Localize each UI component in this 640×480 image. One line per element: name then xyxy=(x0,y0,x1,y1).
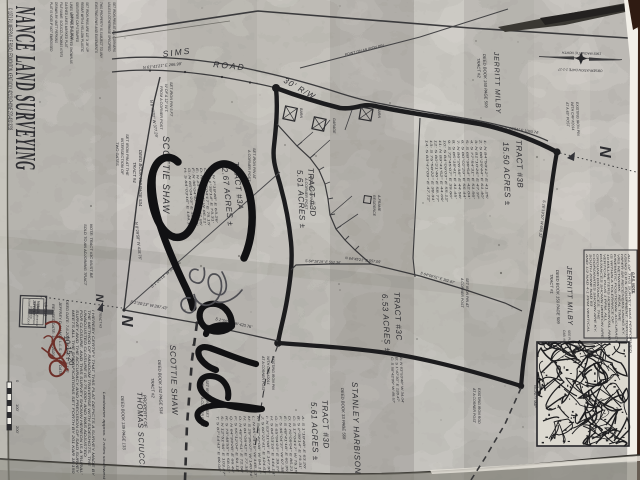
svg-text:NANCE RLS 3514: NANCE RLS 3514 xyxy=(70,14,74,40)
svg-text:NANCE LAND SURVEYING: NANCE LAND SURVEYING xyxy=(10,5,42,170)
svg-text:LAND SURVEYOR: LAND SURVEYOR xyxy=(35,304,40,326)
svg-text:TWO GATES: TWO GATES xyxy=(115,142,120,166)
svg-text:TRACT #2: TRACT #2 xyxy=(150,378,156,399)
svg-text:VICINITY MAP: VICINITY MAP xyxy=(533,385,537,408)
svg-text:200': 200' xyxy=(15,426,20,434)
svg-text:AT A CORNER POST: AT A CORNER POST xyxy=(261,355,265,392)
svg-text:W OF A 12" W.T.: W OF A 12" W.T. xyxy=(164,84,168,112)
svg-text:BARN: BARN xyxy=(377,108,381,118)
svg-text:JERRITT MILBY: JERRITT MILBY xyxy=(565,265,573,326)
svg-text:FROM A CORNER POST: FROM A CORNER POST xyxy=(159,86,163,130)
svg-text:TRACT #3D: TRACT #3D xyxy=(320,400,331,449)
svg-text:AT A CORNER POST: AT A CORNER POST xyxy=(472,387,476,424)
svg-text:N: N xyxy=(93,294,105,303)
svg-text:TRACT #3: TRACT #3 xyxy=(98,312,103,328)
svg-text:GARAGE: GARAGE xyxy=(332,118,336,134)
svg-text:THIS PROPERTY IS SUBJECT TO AN: THIS PROPERTY IS SUBJECT TO ANY xyxy=(99,2,103,59)
svg-text:SURVEY AND THE ACCURACY AND PR: SURVEY AND THE ACCURACY AND PRECISION OF… xyxy=(75,310,79,474)
svg-text:A CORNER POST: A CORNER POST xyxy=(247,149,251,182)
svg-text:100': 100' xyxy=(15,404,20,412)
svg-text:A CORNER POST: A CORNER POST xyxy=(460,277,464,308)
svg-text:UNLESS OTHERWISE SPECIFIED: UNLESS OTHERWISE SPECIFIED xyxy=(107,2,111,52)
svg-text:I HEREBY CERTIFY THAT THIS PLA: I HEREBY CERTIFY THAT THIS PLAT DEPICTS … xyxy=(91,310,95,477)
svg-text:LS-3514: LS-3514 xyxy=(43,302,47,316)
svg-text:SET IRON PINS AT ALL CORNERS: SET IRON PINS AT ALL CORNERS xyxy=(112,2,116,53)
svg-text:WITH CAP #2014: WITH CAP #2014 xyxy=(266,356,270,384)
svg-text:SOLD TO AN ADJOINING TRACT: SOLD TO AN ADJOINING TRACT xyxy=(83,224,88,286)
svg-text:SET IRON PINS ARE 1/2" X 18" U: SET IRON PINS ARE 1/2" X 18" UP xyxy=(85,2,89,52)
svg-text:N: N xyxy=(596,146,613,158)
svg-text:SET IRON PIN AT: SET IRON PIN AT xyxy=(465,278,469,308)
svg-text:SCOTTIE SHAW: SCOTTIE SHAW xyxy=(161,136,171,215)
svg-text:IDENTIFIER CAP STAMPED: IDENTIFIER CAP STAMPED xyxy=(75,2,79,42)
svg-text:BARN: BARN xyxy=(299,108,303,118)
svg-text:PLAT IS VOID IF NOT EMBOSSED: PLAT IS VOID IF NOT EMBOSSED xyxy=(49,2,53,52)
svg-text:TRACT #3B: TRACT #3B xyxy=(514,140,525,189)
svg-text:EXISTING IRON ROD: EXISTING IRON ROD xyxy=(477,388,481,424)
svg-text:SET IRON PIN 5 FT: SET IRON PIN 5 FT xyxy=(169,82,173,117)
svg-text:TRACT #2: TRACT #2 xyxy=(476,58,482,79)
svg-text:EXISTING IRON PIN: EXISTING IRON PIN xyxy=(271,356,275,390)
svg-text:NOTE: TRACT #3C MUST BE: NOTE: TRACT #3C MUST BE xyxy=(89,224,94,278)
svg-text:N: N xyxy=(118,315,135,327)
svg-text:TRACT #4: TRACT #4 xyxy=(132,162,137,183)
svg-text:TRACT #1: TRACT #1 xyxy=(549,274,554,294)
svg-text:SET IRON PIN AT: SET IRON PIN AT xyxy=(252,148,256,179)
svg-text:EXISTING R/WS AND EASEMENTS: EXISTING R/WS AND EASEMENTS xyxy=(94,2,98,53)
svg-text:REBAR WITH A YELLOW PLASTIC: REBAR WITH A YELLOW PLASTIC xyxy=(80,2,84,52)
svg-text:UNADJUSTED CLOSURE IS 1:75,000: UNADJUSTED CLOSURE IS 1:75,000+ AND WAS … xyxy=(83,310,87,458)
svg-text:A-FRAME: A-FRAME xyxy=(377,194,381,212)
svg-text:RESIDENCE: RESIDENCE xyxy=(372,195,376,217)
svg-text:© 1073 PLUMERSVILLE ROAD, EDMO: © 1073 PLUMERSVILLE ROAD, EDMONTON, KENT… xyxy=(5,8,14,130)
svg-text:Landowner approx. 2 miles sout: Landowner approx. 2 miles southwest of E… xyxy=(102,392,106,480)
svg-text:FOR CLOSURE, AND THIS SURVEY S: FOR CLOSURE, AND THIS SURVEY SHOWN HEREO… xyxy=(79,310,83,474)
svg-text:THE METHOD OF RANDOM TRAVERSE: THE METHOD OF RANDOM TRAVERSE WITH SIDES… xyxy=(87,310,91,467)
svg-text:FILE NAME: SCIUCCI-THOMAS #797: FILE NAME: SCIUCCI-THOMAS #7973 xyxy=(59,2,63,57)
svg-text:DRAWN BY: MATT PERKINS: DRAWN BY: MATT PERKINS xyxy=(54,2,58,44)
svg-text:DASHED LINES MARKED PLAT: DASHED LINES MARKED PLAT xyxy=(64,2,68,48)
svg-text:DEED BOOK 150 PAGE 509: DEED BOOK 150 PAGE 509 xyxy=(555,270,561,324)
